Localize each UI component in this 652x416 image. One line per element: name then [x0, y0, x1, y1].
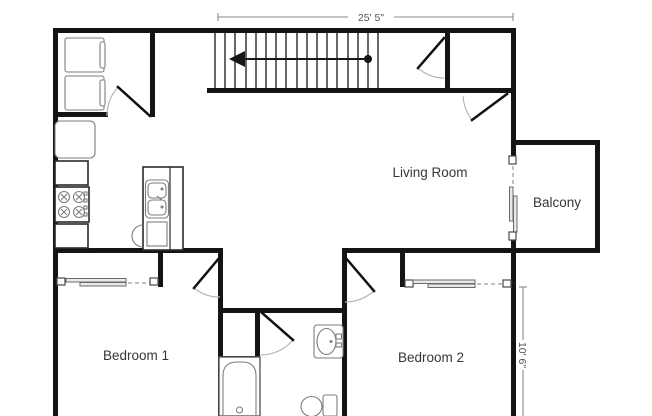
toilet-icon: [301, 395, 337, 416]
bedroom2-closet-slider: [405, 280, 511, 288]
refrigerator-icon: [55, 121, 95, 158]
entry-door-swing: [463, 94, 507, 120]
dryer-icon: [65, 76, 105, 110]
floor-plan: 25' 5" 10' 6" Living Room Balcony Bedroo…: [0, 0, 652, 416]
washer-icon: [65, 38, 105, 72]
balcony-sliding-door: [509, 156, 517, 240]
bedroom1-label: Bedroom 1: [103, 348, 169, 363]
stair-direction-arrow: [229, 51, 372, 67]
living-room-label: Living Room: [392, 165, 467, 180]
balcony-label: Balcony: [533, 195, 581, 210]
dimension-top: 25' 5": [218, 12, 513, 24]
dimension-right-label: 10' 6": [516, 342, 528, 368]
bathroom-sink-icon: [314, 325, 343, 358]
hall-closet-door-swing: [418, 38, 444, 78]
floor-plan-drawing: 25' 5" 10' 6" Living Room Balcony Bedroo…: [0, 0, 652, 416]
dishwasher-icon: [147, 222, 167, 246]
laundry-door-swing: [107, 87, 150, 116]
stove-icon: [55, 187, 89, 222]
bedroom1-closet-slider: [57, 278, 158, 286]
kitchen-sink-icon: [146, 180, 169, 218]
bedroom1-door-swing: [194, 257, 220, 297]
dimension-top-label: 25' 5": [358, 12, 384, 24]
bathtub-icon: [219, 357, 260, 416]
bedroom2-label: Bedroom 2: [398, 350, 464, 365]
dimension-right: 10' 6": [516, 287, 528, 416]
bedroom2-door-swing: [345, 257, 374, 302]
linen-closet-walls: [218, 313, 260, 361]
bathroom-door-swing: [261, 312, 293, 355]
